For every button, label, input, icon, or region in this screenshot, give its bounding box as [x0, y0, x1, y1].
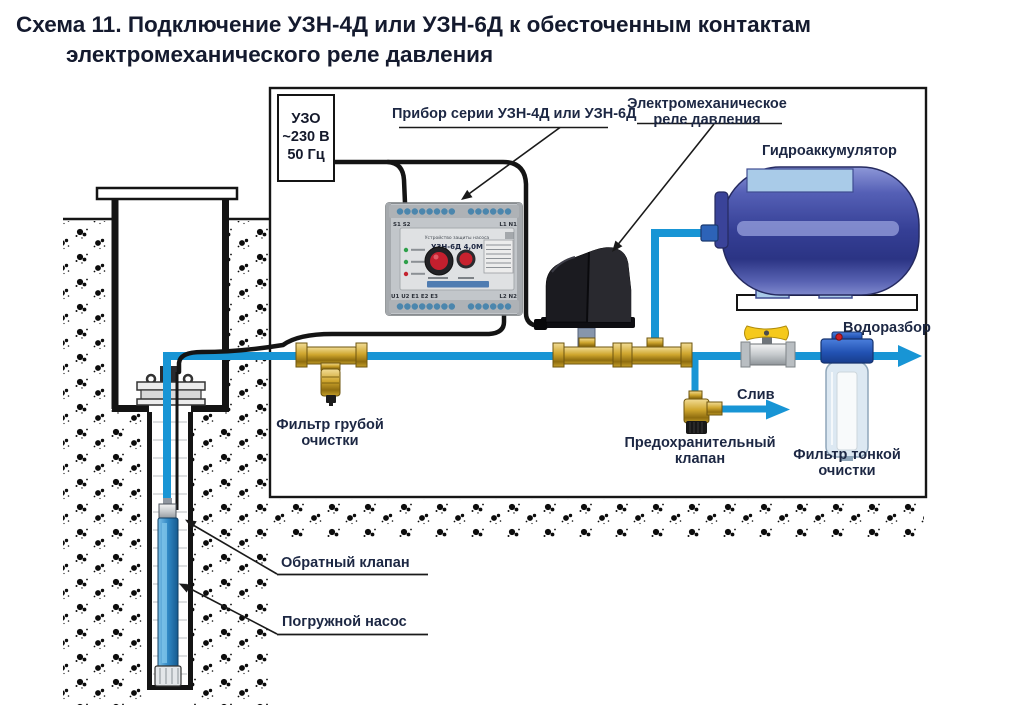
label-uzn-device: Прибор серии УЗН-4Д или УЗН-6Д [392, 107, 636, 123]
label-pump: Погружной насос [282, 615, 407, 631]
label-check-valve: Обратный клапан [281, 556, 410, 572]
cable-gland [534, 319, 547, 330]
uzo-line3: 50 Гц [279, 146, 333, 164]
terminal-label: U1 U2 E1 E2 E3 [391, 294, 438, 300]
led-red [404, 272, 408, 276]
filter-air-button [836, 334, 842, 340]
terminal-label: L1 N1 [499, 222, 517, 228]
terminal-label: L2 N2 [499, 294, 517, 300]
label-pressure-relay: Электромеханическое реле давления [622, 97, 792, 128]
tank-label-plate [747, 169, 853, 192]
label-drain: Слив [737, 388, 775, 404]
fine-filter [821, 332, 873, 461]
label-water-outlet: Водоразбор [843, 321, 931, 337]
page-title: Схема 11. Подключение УЗН-4Д или УЗН-6Д … [16, 10, 811, 70]
tank-inlet-fitting [701, 225, 718, 241]
label-hydroaccumulator: Гидроаккумулятор [762, 144, 897, 160]
uzn-device: S1 S2 L1 N1 Устройство защиты насоса УЗН… [386, 203, 522, 315]
schematic-page: S1 S2 L1 N1 Устройство защиты насоса УЗН… [0, 0, 1024, 710]
tank-shine [737, 221, 899, 236]
uzo-breaker-box: УЗО ~230 В 50 Гц [277, 94, 335, 182]
device-caption: Устройство защиты насоса [425, 234, 490, 241]
submersible-pump [155, 518, 181, 686]
label-coarse-filter: Фильтр грубой очистки [272, 418, 388, 449]
device-label-strip [427, 281, 489, 288]
uzo-line1: УЗО [279, 110, 333, 128]
label-safety-valve: Предохранительный клапан [624, 436, 776, 467]
title-line2: электромеханического реле давления [16, 40, 811, 70]
terminal-label: S1 S2 [393, 222, 411, 228]
led-green [404, 248, 408, 252]
title-line1: Схема 11. Подключение УЗН-4Д или УЗН-6Д … [16, 10, 811, 40]
ball-valve [741, 326, 795, 367]
label-fine-filter: Фильтр тонкой очистки [786, 448, 908, 479]
caisson-lid [97, 188, 237, 199]
uzo-line2: ~230 В [279, 128, 333, 146]
led-green [404, 260, 408, 264]
